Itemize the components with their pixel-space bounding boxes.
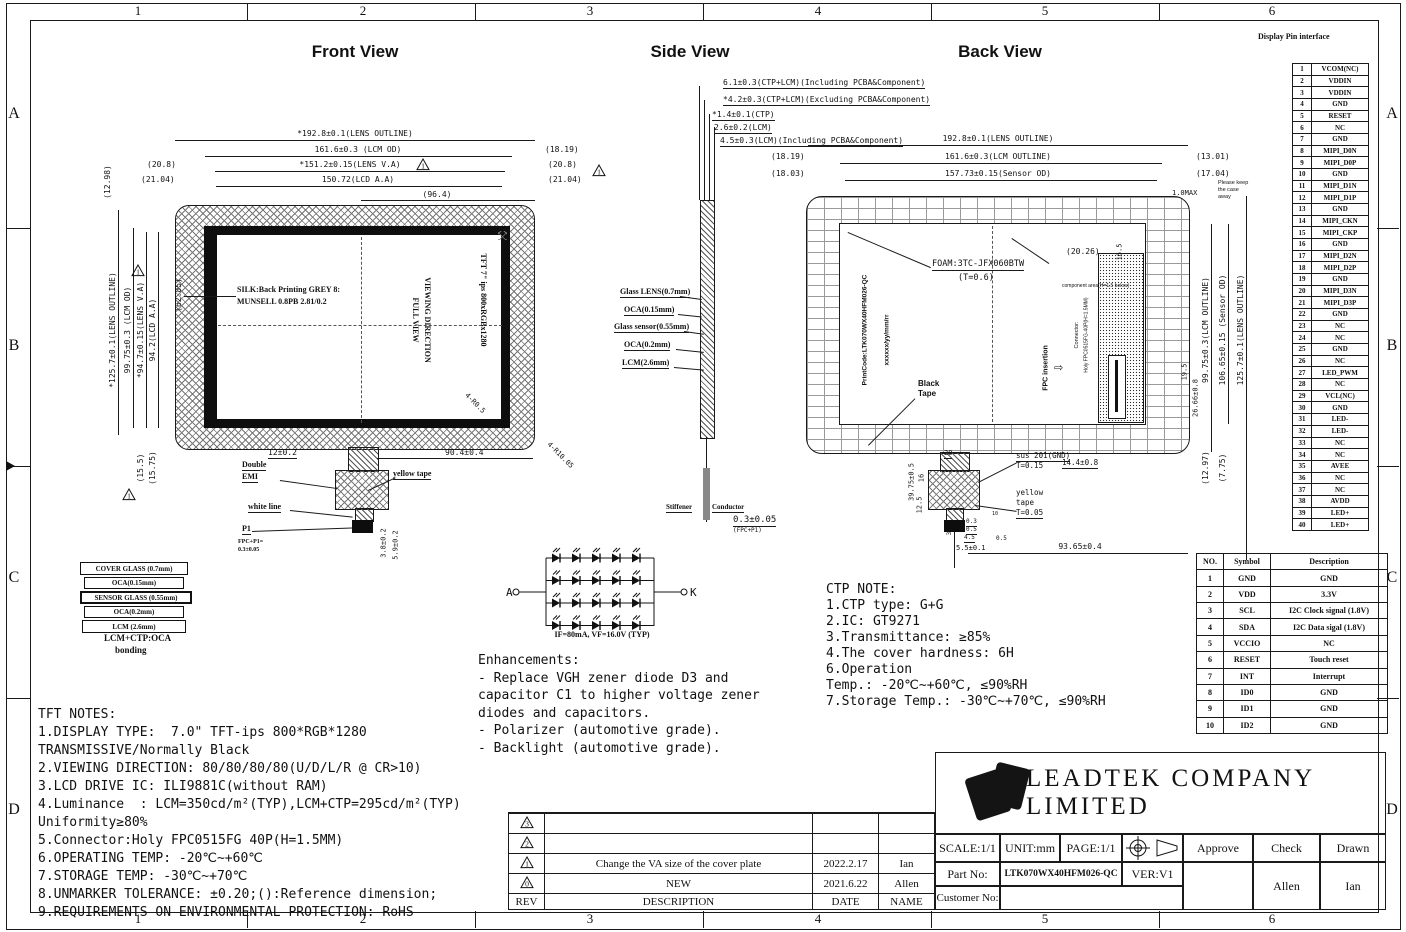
touch-row: 5VCCIONC	[1197, 635, 1388, 651]
ctp-note-block: CTP NOTE:1.CTP type: G+G2.IC: GT92713.Tr…	[826, 582, 1106, 710]
stiffener-label: Stiffener	[666, 504, 692, 513]
grid-col-label: 3	[587, 911, 594, 927]
pin-row: 22GND	[1293, 309, 1369, 321]
touch-cell: INT	[1224, 668, 1271, 684]
dim-label: (13.01)	[1196, 153, 1230, 161]
pin-row: 6NC	[1293, 122, 1369, 134]
fpc-connector-tip	[352, 520, 373, 533]
touch-cell: Interrupt	[1271, 668, 1388, 684]
stack-caption1: LCM+CTP:OCA	[104, 634, 171, 643]
dim-line	[845, 180, 1157, 181]
tft-notes-block: TFT NOTES:1.DISPLAY TYPE: 7.0" TFT-ips 8…	[38, 706, 461, 922]
double-emi-label2: EMI	[242, 473, 258, 483]
pin-cell: VCL(NC)	[1312, 390, 1369, 402]
drawing-element	[612, 621, 620, 630]
pin-cell: 12	[1293, 192, 1312, 204]
pin-cell: 31	[1293, 414, 1312, 426]
note-line: - Backlight (automotive grade).	[478, 740, 760, 758]
dim-label: *94.7±0.15(LENS V.A)	[137, 282, 145, 378]
front-corner-mark	[498, 231, 507, 240]
pin-interface-title: Display Pin interface	[1258, 33, 1330, 41]
pin-cell: 13	[1293, 204, 1312, 216]
fpc-insertion-arrow-icon: ⇨	[1054, 358, 1063, 376]
rev-marker: 1	[122, 486, 136, 505]
dim-label: 1.0MAX	[1172, 190, 1197, 197]
pin-row: 10GND	[1293, 169, 1369, 181]
pin-row: 16GND	[1293, 239, 1369, 251]
revision-header-cell: NAME	[879, 894, 935, 910]
page-cell: PAGE:1/1	[1060, 834, 1122, 862]
dim-line	[133, 228, 134, 428]
dim-line	[205, 156, 512, 157]
margin-tick	[247, 3, 248, 20]
led-backlight-circuit: AK	[500, 546, 700, 634]
dim-label: 12±0.2	[268, 449, 297, 459]
side-view-title: Side View	[650, 42, 729, 62]
drawing-element: 1	[136, 268, 140, 277]
dim-label: 16.5	[1116, 244, 1123, 261]
pin-cell: AVEE	[1312, 460, 1369, 472]
rev-triangle-icon: 1	[520, 856, 534, 869]
drawing-element: 3	[525, 820, 529, 829]
touch-cell: GND	[1271, 570, 1388, 586]
pin-cell: LED-	[1312, 425, 1369, 437]
pin-row: 26NC	[1293, 355, 1369, 367]
touch-cell: NC	[1271, 635, 1388, 651]
silk-note-line1: SILK:Back Printing GREY 8:	[237, 286, 340, 294]
pin-cell: 5	[1293, 110, 1312, 122]
back-emi-block	[928, 470, 980, 510]
touch-cell: GND	[1271, 717, 1388, 733]
dim-line	[1246, 196, 1247, 560]
touch-row: 6RESETTouch reset	[1197, 652, 1388, 668]
touch-cell: Touch reset	[1271, 652, 1388, 668]
grid-row-label: D	[1386, 801, 1398, 819]
drawing-element	[612, 576, 620, 585]
touch-cell: 7	[1197, 668, 1224, 684]
white-line-label: white line	[248, 503, 281, 513]
case-note: Please keep	[1218, 181, 1248, 187]
pin-row: 8MIPI_D0N	[1293, 145, 1369, 157]
rev-marker: 1	[131, 262, 145, 281]
touch-cell: 6	[1197, 652, 1224, 668]
dim-label: (15.5)	[137, 454, 145, 483]
touch-header-cell: Description	[1271, 554, 1388, 570]
note-line: capacitor C1 to higher voltage zener	[478, 687, 760, 705]
approve-header-cell: Approve	[1183, 834, 1253, 862]
note-line: 4.Luminance : LCM=350cd/m²(TYP),LCM+CTP=…	[38, 796, 461, 814]
drawing-element	[1157, 840, 1177, 856]
pin-cell: MIPI_CKN	[1312, 215, 1369, 227]
dim-line	[215, 171, 505, 172]
drawn-header-cell: Drawn	[1320, 834, 1386, 862]
pin-cell: VDDIN	[1312, 75, 1369, 87]
dim-label: 125.7±0.1(LENS OUTLINE)	[1237, 275, 1245, 386]
dim-line	[808, 145, 1188, 146]
pin-cell: NC	[1312, 320, 1369, 332]
pin-cell: AVDD	[1312, 495, 1369, 507]
revision-cell	[813, 814, 879, 834]
touch-cell: I2C Clock signal (1.8V)	[1271, 603, 1388, 619]
touch-cell: ID0	[1224, 684, 1271, 700]
pin-row: 13GND	[1293, 204, 1369, 216]
rev-triangle-icon: 1	[122, 488, 136, 501]
pin-row: 31LED-	[1293, 414, 1369, 426]
pin-row: 30GND	[1293, 402, 1369, 414]
pin-cell: MIPI_CKP	[1312, 227, 1369, 239]
scale-cell: SCALE:1/1	[935, 834, 1000, 862]
margin-tick	[1159, 3, 1160, 20]
dim-label: 10	[992, 512, 998, 517]
drawing-element	[552, 576, 560, 585]
dim-label: 16	[918, 474, 925, 482]
ext-line	[714, 127, 715, 200]
drawing-element	[632, 576, 640, 585]
drawing-sheet: 112233445566AABBCCDD Front View SILK:Bac…	[0, 0, 1406, 932]
pin-cell: MIPI_D3P	[1312, 297, 1369, 309]
dim-label: 5.9±0.2	[392, 530, 399, 560]
pin-row: 39LED+	[1293, 507, 1369, 519]
pin-row: 37NC	[1293, 484, 1369, 496]
dim-label: *192.8±0.1(LENS OUTLINE)	[297, 130, 413, 138]
back-connector-bar	[1115, 360, 1118, 412]
note-line: - Polarizer (automotive grade).	[478, 722, 760, 740]
unit-cell: UNIT:mm	[1000, 834, 1060, 862]
note-line: diodes and capacitors.	[478, 705, 760, 723]
drawing-element	[572, 621, 580, 630]
pin-cell: 17	[1293, 250, 1312, 262]
silk-leader	[184, 296, 236, 297]
touch-row: 2VDD3.3V	[1197, 586, 1388, 602]
pin-cell: 20	[1293, 285, 1312, 297]
stack-caption2: bonding	[115, 646, 147, 655]
pin-row: 14MIPI_CKN	[1293, 215, 1369, 227]
pin-cell: 25	[1293, 344, 1312, 356]
back-view-title: Back View	[958, 42, 1042, 62]
dim-label: *151.2±0.15(LENS V.A)	[299, 161, 400, 169]
drawing-element	[572, 554, 580, 563]
revision-cell	[879, 814, 935, 834]
touch-cell: I2C Data sigal (1.8V)	[1271, 619, 1388, 635]
pin-cell: GND	[1312, 274, 1369, 286]
pin-row: 7GND	[1293, 134, 1369, 146]
pin-cell: 14	[1293, 215, 1312, 227]
drawing-element	[632, 621, 640, 630]
margin-tick	[1159, 911, 1160, 928]
pin-row: 23NC	[1293, 320, 1369, 332]
side-glass-stack	[700, 200, 715, 439]
part-no-label-cell: Part No:	[935, 862, 1000, 886]
pin-cell: VCOM(NC)	[1312, 64, 1369, 76]
dim-label: 192.8±0.1(LENS OUTLINE)	[943, 135, 1054, 143]
grid-col-label: 1	[135, 3, 142, 19]
pin-cell: 37	[1293, 484, 1312, 496]
pin-cell: NC	[1312, 122, 1369, 134]
dim-label: 19.5	[1181, 364, 1188, 381]
margin-tick	[475, 3, 476, 20]
stack-layer-box: LCM (2.6mm)	[82, 620, 186, 633]
black-tape-label1: Black	[918, 380, 939, 388]
grid-row-label: B	[1387, 337, 1398, 355]
pin-cell: NC	[1312, 332, 1369, 344]
pin-cell: 9	[1293, 157, 1312, 169]
pin-cell: 36	[1293, 472, 1312, 484]
pin-cell: MIPI_D1N	[1312, 180, 1369, 192]
rev-marker: 1	[592, 162, 606, 181]
drawing-element	[552, 554, 560, 563]
pin-row: 21MIPI_D3P	[1293, 297, 1369, 309]
note-line: 2.VIEWING DIRECTION: 80/80/80/80(U/D/L/R…	[38, 760, 461, 778]
pin-row: 28NC	[1293, 379, 1369, 391]
touch-header-cell: Symbol	[1224, 554, 1271, 570]
drawing-element: 1	[127, 492, 131, 501]
drawing-element	[612, 554, 620, 563]
pin-cell: 39	[1293, 507, 1312, 519]
revision-cell: 2022.2.17	[813, 854, 879, 874]
margin-tick	[1377, 466, 1399, 467]
revision-cell: Allen	[879, 874, 935, 894]
dim-label: (12.97)	[1202, 451, 1210, 485]
revision-row: 2	[509, 834, 935, 854]
touch-cell: GND	[1271, 701, 1388, 717]
pin-cell: MIPI_D0N	[1312, 145, 1369, 157]
touch-cell: 8	[1197, 684, 1224, 700]
pin-row: 12MIPI_D1P	[1293, 192, 1369, 204]
dim-label: (20.8)	[147, 161, 176, 169]
grid-col-label: 3	[587, 3, 594, 19]
pin-cell: 16	[1293, 239, 1312, 251]
pin-cell: 29	[1293, 390, 1312, 402]
drawing-element	[572, 576, 580, 585]
viewing-direction-label: VIEWING DIRECTION	[423, 277, 431, 363]
grid-col-label: 5	[1042, 911, 1049, 927]
margin-tick	[1377, 228, 1399, 229]
touch-cell: SDA	[1224, 619, 1271, 635]
full-view-label: FULL VIEW	[411, 298, 419, 343]
component-area-note: component area(H=1.5 below)	[1062, 284, 1129, 289]
dim-label: 99.75±0.3 (LCM OD)	[124, 287, 132, 374]
printcode-label: PrintCode:LTK070WX40HFM026-QC	[863, 275, 870, 386]
revision-table: 3 2 1Change the VA size of the cover pla…	[508, 812, 935, 910]
pin-row: 19GND	[1293, 274, 1369, 286]
yellow-tape-label2: tape	[1016, 499, 1034, 507]
margin-tick	[703, 911, 704, 928]
revision-cell: 2021.6.22	[813, 874, 879, 894]
dim-label: (7.75)	[1219, 454, 1227, 483]
touch-header-cell: NO.	[1197, 554, 1224, 570]
touch-cell: 10	[1197, 717, 1224, 733]
grid-row-label: D	[8, 801, 20, 819]
layer-label: LCM(2.6mm)	[622, 359, 669, 369]
pin-row: 40LED+	[1293, 519, 1369, 531]
pin-row: 25GND	[1293, 344, 1369, 356]
led-spec-label: IF=80mA, VF=16.0V (TYP)	[554, 631, 649, 639]
pin-cell: 3	[1293, 87, 1312, 99]
touch-cell: 2	[1197, 586, 1224, 602]
dim-label: 93.65±0.4	[1058, 543, 1101, 551]
approve-signature-cell	[1183, 862, 1253, 910]
pin-cell: 26	[1293, 355, 1312, 367]
emi-block	[335, 470, 389, 510]
dim-label: (15.75)	[149, 451, 157, 485]
revision-table-body: 3 2 1Change the VA size of the cover pla…	[509, 813, 935, 910]
drawn-signature-cell: Ian	[1320, 862, 1386, 910]
enhancements-block: Enhancements:- Replace VGH zener diode D…	[478, 652, 760, 757]
revision-header-cell: DATE	[813, 894, 879, 910]
double-emi-label1: Double	[242, 461, 266, 471]
grid-row-label: B	[9, 337, 20, 355]
pin-interface-body: 1VCOM(NC)2VDDIN3VDDIN4GND5RESET6NC7GND8M…	[1293, 64, 1369, 531]
pin-cell: GND	[1312, 344, 1369, 356]
back-fpc-line	[954, 532, 955, 568]
side-stiffener-bar	[703, 468, 710, 520]
rev-triangle-icon: 2	[520, 836, 534, 849]
dim-label: (FPC+P1)	[733, 528, 762, 534]
note-line: TFT NOTES:	[38, 706, 461, 724]
dim-line	[1211, 224, 1212, 452]
company-name: LEADTEK COMPANY LIMITED	[1026, 765, 1385, 821]
pin-cell: LED_PWM	[1312, 367, 1369, 379]
revision-cell	[879, 834, 935, 854]
pin-cell: 1	[1293, 64, 1312, 76]
yellow-tape-label: yellow tape	[393, 470, 431, 480]
pin-cell: 2	[1293, 75, 1312, 87]
touch-row: 9ID1GND	[1197, 701, 1388, 717]
pin-cell: 18	[1293, 262, 1312, 274]
pin-cell: 40	[1293, 519, 1312, 531]
note-line: 6.Operation	[826, 662, 1106, 678]
touch-cell: 5	[1197, 635, 1224, 651]
pin-cell: NC	[1312, 437, 1369, 449]
rev-triangle-icon: 1	[131, 264, 145, 277]
margin-tick	[6, 228, 30, 229]
dim-line	[1228, 224, 1229, 424]
ext-line	[709, 114, 710, 200]
drawing-element	[592, 554, 600, 563]
touch-cell: GND	[1224, 570, 1271, 586]
case-note: the case	[1218, 188, 1239, 194]
dim-label: *4.2±0.3(CTP+LCM)(Excluding PCBA&Compone…	[723, 96, 930, 106]
ext-line	[704, 100, 705, 200]
touch-cell: GND	[1271, 684, 1388, 700]
case-note: away	[1218, 195, 1231, 201]
grid-row-label: C	[1387, 569, 1398, 587]
note-line: 2.IC: GT9271	[826, 614, 1106, 630]
silk-note-line2: MUNSELL 0.8PB 2.81/0.2	[237, 298, 327, 306]
panel-type-label: TFT 7" ips 800xRGBx1280	[479, 254, 487, 347]
dim-label: 4.5	[964, 535, 975, 543]
drawing-element: 1	[597, 168, 601, 177]
yellow-tape-thickness: T=0.05	[1016, 509, 1043, 519]
grid-col-label: 4	[815, 911, 822, 927]
touch-table-body: NO.SymbolDescription1GNDGND2VDD3.3V3SCLI…	[1197, 554, 1388, 734]
dim-label: 0.5	[996, 536, 1007, 542]
pin-cell: GND	[1312, 239, 1369, 251]
dim-label: 26.66±0.8	[1192, 379, 1199, 417]
touch-row: 7INTInterrupt	[1197, 668, 1388, 684]
pin-cell: 21	[1293, 297, 1312, 309]
company-logo	[966, 761, 1046, 825]
pin-cell: GND	[1312, 134, 1369, 146]
dim-label: 161.6±0.3(LCM OUTLINE)	[945, 153, 1051, 161]
note-line: 7.Storage Temp.: -30℃~+70℃, ≤90%RH	[826, 694, 1106, 710]
grid-col-label: 4	[815, 3, 822, 19]
touch-row: 4SDAI2C Data sigal (1.8V)	[1197, 619, 1388, 635]
revision-row: 1Change the VA size of the cover plate20…	[509, 854, 935, 874]
dim-line	[216, 186, 502, 187]
pin-row: 1VCOM(NC)	[1293, 64, 1369, 76]
note-line: TRANSMISSIVE/Normally Black	[38, 742, 461, 760]
revision-row: 3	[509, 814, 935, 834]
dim-label: 99.75±0.3(LCM OUTLINE)	[1202, 277, 1210, 383]
note-line: 7.STORAGE TEMP: -30℃~+70℃	[38, 868, 461, 886]
fpc-p1-label1: FPC+P1=	[238, 539, 263, 545]
margin-tick	[931, 911, 932, 928]
drawing-element	[572, 599, 580, 608]
revision-cell: 3	[509, 814, 545, 834]
pin-cell: NC	[1312, 484, 1369, 496]
revision-cell: Change the VA size of the cover plate	[545, 854, 813, 874]
pin-row: 38AVDD	[1293, 495, 1369, 507]
dim-label: 5.5±0.1	[956, 545, 986, 552]
touch-row: 8ID0GND	[1197, 684, 1388, 700]
pin-row: 15MIPI_CKP	[1293, 227, 1369, 239]
drawing-element: 0	[525, 880, 529, 889]
foam-label1: FOAM:3TC-JFX060BTW	[932, 260, 1024, 271]
dim-label: (96.4)	[423, 191, 452, 199]
pin-cell: 30	[1293, 402, 1312, 414]
rev-triangle-icon: 0	[520, 876, 534, 889]
note-line: CTP NOTE:	[826, 582, 1106, 598]
pin-row: 4GND	[1293, 99, 1369, 111]
margin-tick	[931, 3, 932, 20]
dim-label: *1.4±0.1(CTP)	[712, 111, 775, 121]
pin-row: 27LED_PWM	[1293, 367, 1369, 379]
drawing-element	[592, 621, 600, 630]
dim-label: 39.75±0.5	[908, 463, 915, 501]
note-line: 1.DISPLAY TYPE: 7.0" TFT-ips 800*RGB*128…	[38, 724, 461, 742]
pin-row: 20MIPI_D3N	[1293, 285, 1369, 297]
touch-cell: RESET	[1224, 652, 1271, 668]
dim-line	[361, 200, 535, 201]
note-line: Temp.: -20℃~+60℃, ≤90%RH	[826, 678, 1106, 694]
pin-cell: 4	[1293, 99, 1312, 111]
drawing-element	[612, 599, 620, 608]
drawing-element: A	[506, 586, 513, 599]
fpc-tab	[348, 447, 379, 472]
dim-label: 94.2(LCD A.A)	[149, 299, 157, 362]
note-line: 1.CTP type: G+G	[826, 598, 1106, 614]
dim-label: (18.19)	[545, 146, 579, 154]
pin-cell: VDDIN	[1312, 87, 1369, 99]
pin-cell: NC	[1312, 355, 1369, 367]
pin-row: 35AVEE	[1293, 460, 1369, 472]
drawing-element	[592, 599, 600, 608]
pin-row: 17MIPI_D2N	[1293, 250, 1369, 262]
pin-cell: GND	[1312, 169, 1369, 181]
touch-row: 1GNDGND	[1197, 570, 1388, 586]
note-line: 6.OPERATING TEMP: -20℃~+60℃	[38, 850, 461, 868]
dim-label: 3.8±0.2	[380, 528, 387, 558]
front-centerline-v	[361, 237, 362, 423]
note-line: - Replace VGH zener diode D3 and	[478, 670, 760, 688]
drawing-element	[681, 589, 687, 595]
dim-line	[840, 163, 1162, 164]
dim-label: 6.1±0.3(CTP+LCM)(Including PCBA&Componen…	[723, 79, 925, 89]
pin-cell: 15	[1293, 227, 1312, 239]
margin-tick	[475, 911, 476, 928]
revision-cell: 2	[509, 834, 545, 854]
